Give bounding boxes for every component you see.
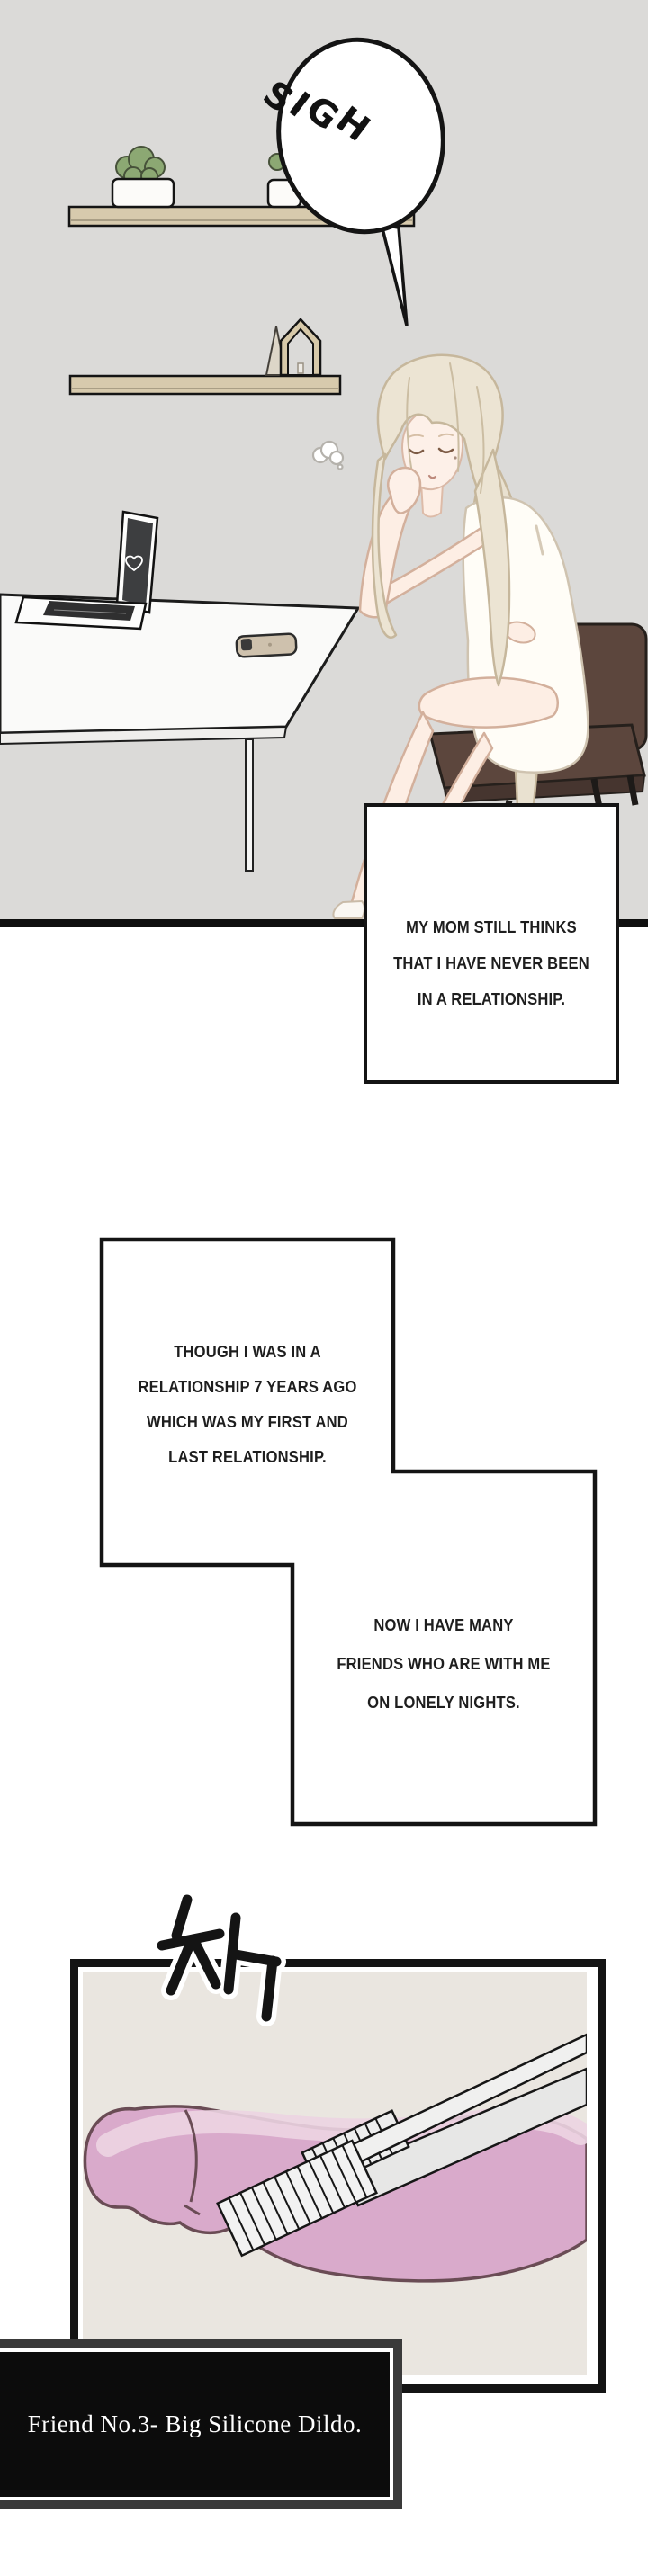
caption-inner-frame: Friend No.3- Big Silicone Dildo. [0,2348,393,2500]
caption-box: Friend No.3- Big Silicone Dildo. [0,2339,402,2509]
narration-zigzag-panel [102,1239,595,1824]
candle [298,363,303,373]
narration-line: THAT I HAVE NEVER BEEN [377,945,606,981]
shelf-bottom [70,376,340,394]
dildo-panel [70,1900,606,2393]
desk-leg [246,739,253,871]
smartphone [236,633,296,657]
white-pot [112,179,174,207]
comic-artwork [0,0,648,2576]
comic-page: SIGH 척 MY MOM STILL THINKS THAT I HAVE N… [0,0,648,2576]
beauty-mark [454,456,456,459]
narration-line: MY MOM STILL THINKS [377,909,606,945]
narration-box-1: MY MOM STILL THINKS THAT I HAVE NEVER BE… [364,803,619,1084]
caption-text: Friend No.3- Big Silicone Dildo. [28,2411,362,2438]
narration-line: IN A RELATIONSHIP. [377,981,606,1017]
phone-camera [241,639,253,651]
